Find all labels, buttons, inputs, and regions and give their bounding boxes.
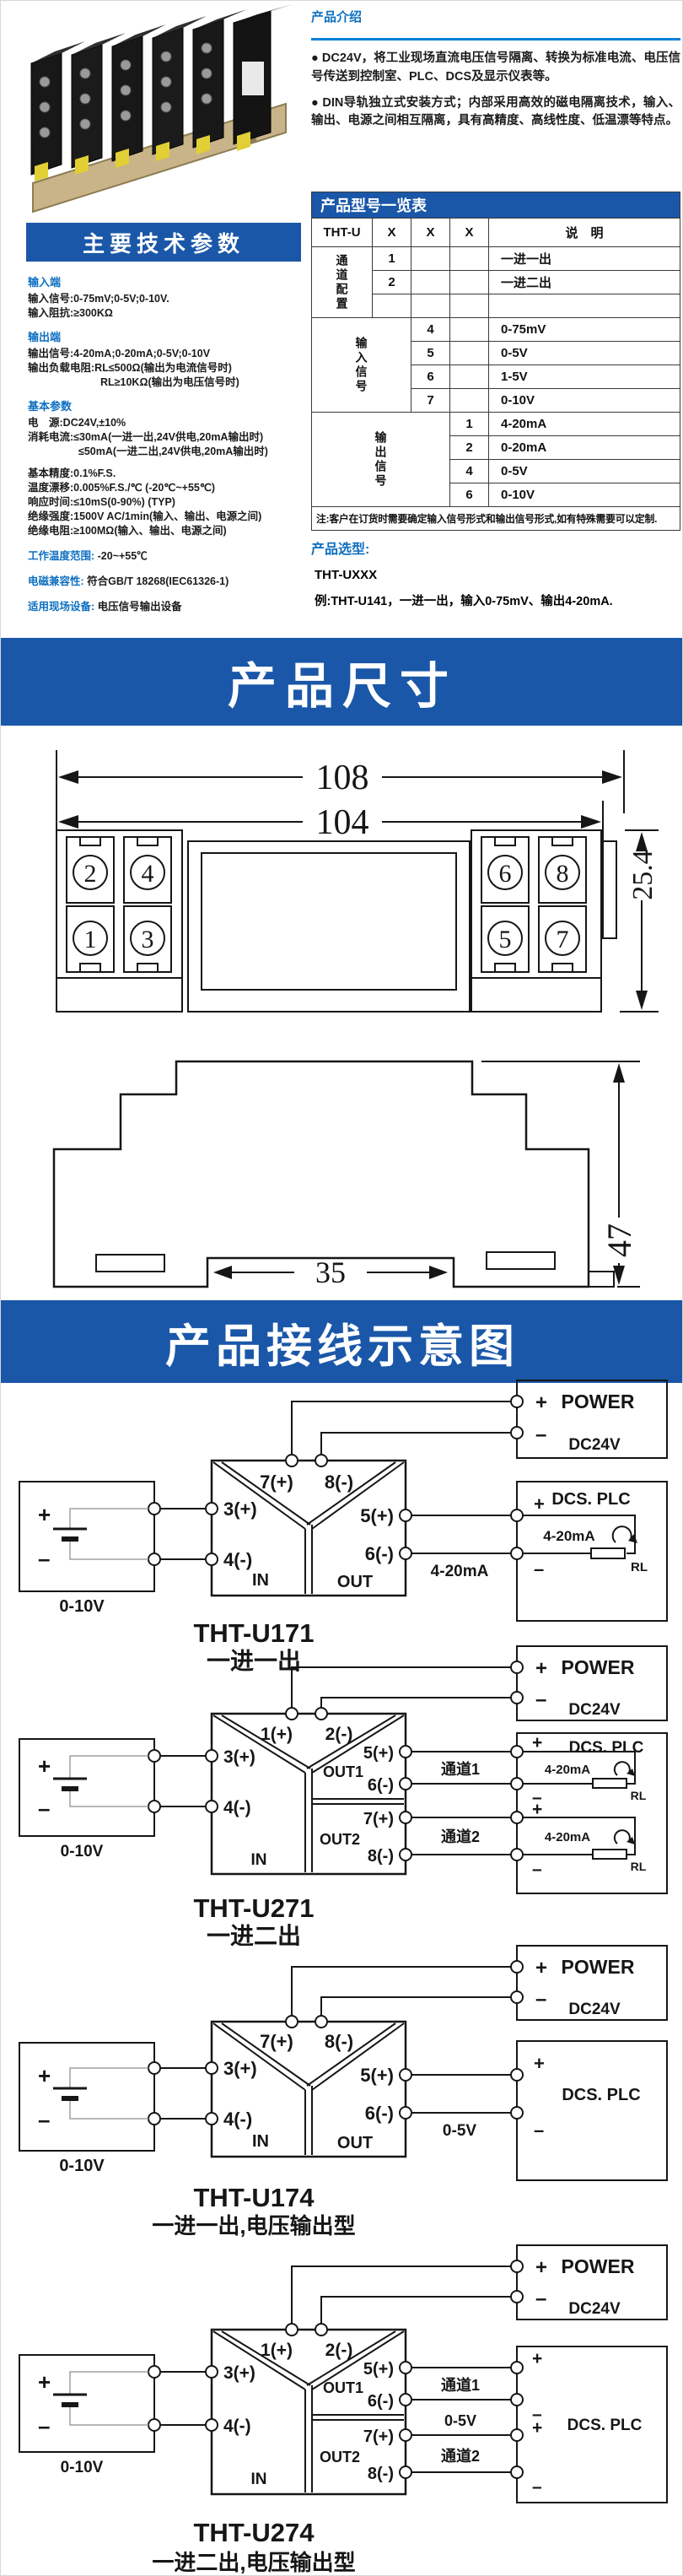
signal-source: + – 0-10V (19, 1482, 160, 1616)
clip-slot (487, 1252, 555, 1269)
terminal-label: 6(-) (368, 1776, 394, 1795)
module-label (242, 62, 264, 95)
power-label: POWER (562, 1656, 635, 1678)
intro-bullet: ● DIN导轨独立式安装方式；内部采用高效的磁电隔离技术，输入、输出、电源之间相… (311, 95, 680, 132)
out-label: OUT (337, 1573, 373, 1591)
terminal-number: 6 (499, 860, 512, 888)
battery-plus: + (38, 1753, 51, 1779)
terminal-number: 3 (142, 926, 154, 953)
dim-108-label: 108 (316, 759, 369, 797)
model-table-title: 产品型号一览表 (312, 192, 680, 219)
minus-sign: – (535, 1423, 546, 1446)
selection-example: 例:THT-U141，一进一出，输入0-75mV、输出4-20mA. (315, 591, 613, 609)
spec-heading: 输入端 (28, 275, 306, 289)
product-datasheet-page: 产品介绍 ● DC24V，将工业现场直流电压信号隔离、转换为标准电流、电压信号传… (0, 0, 683, 2576)
terminal-label: 3(+) (223, 1747, 255, 1767)
wiring-diagram-tht-u274: + – POWER DC24V 1(+) 2(-) 3(+) 4(-) 5(+)… (1, 2233, 683, 2576)
spec-heading: 输出端 (28, 330, 306, 344)
terminal-label: 6(-) (368, 2392, 394, 2411)
plus-sign: + (532, 1733, 542, 1752)
terminal-label: 5(+) (363, 2360, 394, 2379)
terminal-number: 2 (84, 860, 97, 888)
source-label: 0-10V (59, 2157, 105, 2175)
terminal-label: 8(-) (325, 1472, 353, 1493)
minus-sign: – (534, 2120, 544, 2141)
desc-cell: 一进二出 (489, 271, 680, 294)
desc-cell (489, 294, 680, 318)
source-label: 0-10V (61, 2459, 104, 2476)
diagram-model: THT-U271 (194, 1893, 315, 1923)
model-table-note: 注:客户在订货时需要确定输入信号形式和输出信号形式,如有特殊需要可以定制. (312, 507, 680, 531)
loop-label: 4-20mA (545, 1830, 590, 1844)
terminal-label: 4(-) (223, 1549, 252, 1570)
battery-plus: + (38, 2369, 51, 2395)
power-label: POWER (562, 1956, 635, 1978)
dcs-label: DCS. PLC (567, 2417, 643, 2434)
spec-line: 绝缘强度:1500V AC/1min(输入、输出、电源之间) (28, 510, 306, 524)
minus-sign: – (534, 1558, 544, 1580)
terminal-label: 8(-) (325, 2031, 353, 2052)
desc-cell: 0-10V (489, 483, 680, 507)
wiring-diagram-tht-u174: + – POWER DC24V 7(+) 8(-) 3(+) 4(-) 5(+)… (1, 1933, 683, 2237)
terminal-label: 5(+) (363, 1744, 394, 1763)
minus-sign: – (532, 2477, 542, 2497)
intro-title: 产品介绍 (311, 8, 362, 25)
diagram-model: THT-U174 (194, 2183, 315, 2212)
code-cell (373, 294, 411, 318)
load-resistor (593, 1850, 627, 1859)
desc-cell: 一进一出 (489, 247, 680, 271)
loop-label: 4-20mA (543, 1528, 594, 1544)
desc-cell: 0-75mV (489, 318, 680, 342)
dcs-box: + – DCS. PLC (511, 2041, 667, 2180)
power-voltage: DC24V (568, 2001, 621, 2018)
spec-line: 输入阻抗:≥300KΩ (28, 306, 306, 321)
channel2-label: 通道2 (441, 2447, 480, 2465)
terminal-label: 2(-) (325, 2341, 353, 2360)
terminal-label: 2(-) (325, 1725, 353, 1744)
code-cell: 6 (411, 365, 450, 389)
plus-sign: + (532, 1800, 542, 1819)
diagram-subtitle: 一进二出,电压输出型 (152, 2550, 355, 2575)
terminal-number: 5 (499, 926, 512, 953)
out1-label: OUT1 (323, 2379, 363, 2396)
terminal-label: 6(-) (365, 1543, 394, 1564)
code-cell: 2 (373, 271, 411, 294)
dim-108: 108 (58, 759, 622, 797)
terminal-label: 7(+) (363, 1810, 394, 1828)
desc-cell: 0-10V (489, 389, 680, 413)
code-cell: 2 (450, 436, 489, 460)
code-cell: 4 (411, 318, 450, 342)
code-cell: 1 (450, 413, 489, 436)
desc-cell: 0-5V (489, 342, 680, 365)
left-terminal-block: 2 4 1 3 (56, 830, 182, 1012)
model-x2: X (411, 219, 450, 247)
wire-label: 4-20mA (431, 1563, 489, 1580)
plus-sign: + (534, 1493, 545, 1515)
wiring-diagram-tht-u171: + – POWER DC24V 7(+) 8(-) 3(+) 4(-) 5(+)… (1, 1364, 683, 1671)
minus-sign: – (535, 1988, 546, 2011)
source-label: 0-10V (59, 1597, 105, 1616)
spec-kv: 适用现场设备: 电压信号输出设备 (28, 600, 306, 614)
out2-label: OUT2 (320, 1831, 360, 1848)
intro-bullets: ● DC24V，将工业现场直流电压信号隔离、转换为标准电流、电压信号传送到控制室… (311, 50, 680, 138)
rl-label: RL (631, 1789, 647, 1802)
din-clip-tab (603, 841, 616, 938)
code-cell: 7 (411, 389, 450, 413)
specs-list: 输入端 输入信号:0-75mV;0-5V;0-10V. 输入阻抗:≥300KΩ … (28, 266, 306, 614)
range-label: 0-5V (444, 2412, 476, 2429)
dim-35-label: 35 (315, 1256, 346, 1289)
product-photo (8, 4, 298, 217)
terminal-number: 7 (557, 926, 569, 953)
power-box: + – POWER DC24V (511, 1646, 667, 1720)
plus-sign: + (535, 1657, 547, 1680)
plus-sign: + (535, 2256, 547, 2279)
model-x1: X (373, 219, 411, 247)
in-label: IN (251, 2471, 267, 2488)
spec-line: 消耗电流:≤30mA(一进一出,24V供电,20mA输出时) (28, 430, 306, 445)
power-label: POWER (562, 1391, 635, 1412)
terminal-label: 5(+) (360, 2065, 394, 2086)
terminal-label: 8(-) (368, 2465, 394, 2483)
dimension-top-view: 108 104 2 4 1 3 (1, 733, 683, 1039)
desc-cell: 0-20mA (489, 436, 680, 460)
code-cell: 6 (450, 483, 489, 507)
spec-line: 电 源:DC24V,±10% (28, 416, 306, 430)
spec-line: 输入信号:0-75mV;0-5V;0-10V. (28, 292, 306, 306)
terminal-number: 4 (142, 860, 154, 888)
rail-notch (589, 1272, 614, 1287)
dim-25-4: 25.4 (620, 830, 659, 1012)
code-cell: 1 (373, 247, 411, 271)
out1-label: OUT1 (323, 1763, 363, 1780)
channel2-label: 通道2 (441, 1828, 480, 1845)
terminal-label: 4(-) (223, 2417, 251, 2436)
battery-minus: – (38, 1796, 50, 1821)
in-label: IN (252, 1571, 269, 1590)
spec-line: 输出信号:4-20mA;0-20mA;0-5V;0-10V (28, 347, 306, 361)
dim-25-4-label: 25.4 (627, 850, 659, 900)
battery-minus: – (38, 1546, 50, 1571)
spec-line: 输出负载电阻:RL≤500Ω(输出为电流信号时) (28, 361, 306, 375)
battery-minus: – (38, 2107, 50, 2132)
minus-sign: – (535, 2287, 546, 2310)
selection-model: THT-UXXX (315, 568, 377, 582)
desc-cell: 0-5V (489, 460, 680, 483)
dim-47-label: 47 (600, 1223, 638, 1257)
terminal-label: 7(+) (363, 2427, 394, 2446)
terminal-label: 1(+) (261, 2341, 293, 2360)
dimension-profile: 35 47 (1, 1039, 683, 1302)
isolator-device: 1(+) 2(-) 3(+) 4(-) 5(+) 6(-) 7(+) 8(-) … (206, 2324, 411, 2494)
dcs-box: DCS. PLC + – + – 4-20mA RL 4-20mA RL (511, 1733, 667, 1893)
load-resistor (593, 1779, 627, 1788)
isolator-device: 7(+) 8(-) 3(+) 4(-) 5(+) 6(-) IN OUT (206, 2016, 411, 2157)
wire-label: 0-5V (443, 2122, 476, 2140)
signal-source: + – 0-10V (19, 1739, 160, 1860)
group-input: 输入信号 (312, 318, 411, 413)
dcs-box: DCS. PLC + – 4-20mA RL (511, 1482, 667, 1621)
model-prefix: THT-U (312, 219, 373, 247)
diagram-model: THT-U274 (194, 2518, 315, 2547)
terminal-label: 7(+) (260, 2031, 293, 2052)
source-label: 0-10V (61, 1843, 104, 1860)
terminal-label: 4(-) (223, 1798, 251, 1817)
channel1-label: 通道1 (441, 1760, 480, 1778)
out-label: OUT (337, 2134, 373, 2152)
right-terminal-block: 6 8 5 7 (471, 830, 601, 1012)
minus-sign: – (532, 1860, 542, 1879)
channel1-label: 通道1 (441, 2376, 480, 2394)
isolator-modules (31, 4, 293, 181)
spec-line: RL≥10KΩ(输出为电压信号时) (28, 375, 306, 390)
dim-35: 35 (213, 1256, 448, 1289)
signal-source: + – 0-10V (19, 2355, 160, 2476)
rl-label: RL (631, 1560, 648, 1574)
plus-sign: + (535, 1957, 547, 1979)
specs-banner: 主要技术参数 (26, 223, 301, 262)
plus-sign: + (535, 1391, 547, 1414)
terminal-label: 3(+) (223, 2363, 255, 2383)
terminal-label: 3(+) (223, 1499, 257, 1520)
spec-line: ≤50mA(一进二出,24V供电,20mA输出时) (28, 445, 306, 459)
rl-label: RL (631, 1860, 647, 1873)
power-box: + – POWER DC24V (511, 1380, 667, 1458)
spec-kv: 工作温度范围: -20~+55℃ (28, 549, 306, 564)
spec-kv: 电磁兼容性: 符合GB/T 18268(IEC61326-1) (28, 575, 306, 589)
spec-line: 响应时间:≤10mS(0-90%) (TYP) (28, 495, 306, 510)
minus-sign: – (535, 1688, 546, 1711)
battery-minus: – (38, 2413, 50, 2438)
terminal-label: 7(+) (260, 1472, 293, 1493)
terminal-label: 1(+) (261, 1725, 293, 1744)
power-voltage: DC24V (568, 1436, 621, 1454)
signal-source: + – 0-10V (19, 2043, 160, 2175)
battery-plus: + (38, 1502, 51, 1527)
isolator-device: 7(+) 8(-) 3(+) 4(-) 5(+) 6(-) IN OUT (206, 1455, 411, 1596)
dcs-box: + – + – DCS. PLC (511, 2346, 667, 2503)
terminal-number: 8 (557, 860, 569, 888)
wiring-diagram-tht-u271: + – POWER DC24V 1(+) 2(-) 3(+) 4(-) 5(+)… (1, 1634, 683, 1946)
battery-plus: + (38, 2063, 51, 2088)
loop-arrow (613, 1526, 632, 1542)
intro-rule (311, 38, 680, 41)
in-label: IN (252, 2132, 269, 2151)
terminal-label: 3(+) (223, 2058, 257, 2079)
terminal-label: 6(-) (365, 2103, 394, 2124)
model-desc-head: 说 明 (489, 219, 680, 247)
isolator-device: 1(+) 2(-) 3(+) 4(-) 5(+) 6(-) 7(+) 8(-) … (206, 1708, 411, 1874)
model-table: 产品型号一览表 THT-U X X X 说 明 通道配置 1 一进一出 2 一进… (311, 192, 680, 531)
in-label: IN (251, 1851, 267, 1869)
spec-line: 温度漂移:0.005%F.S./℃ (-20℃~+55℃) (28, 481, 306, 495)
code-cell: 4 (450, 460, 489, 483)
group-channel: 通道配置 (312, 247, 373, 318)
loop-label: 4-20mA (545, 1763, 590, 1777)
spec-line: 基本精度:0.1%F.S. (28, 467, 306, 481)
intro-bullet: ● DC24V，将工业现场直流电压信号隔离、转换为标准电流、电压信号传送到控制室… (311, 50, 680, 87)
out2-label: OUT2 (320, 2449, 360, 2465)
dcs-label: DCS. PLC (551, 1490, 630, 1509)
terminal-number: 1 (84, 926, 97, 953)
terminal-label: 4(-) (223, 2109, 252, 2130)
group-output: 输出信号 (312, 413, 450, 507)
power-voltage: DC24V (568, 1701, 621, 1719)
desc-cell: 4-20mA (489, 413, 680, 436)
load-resistor (591, 1548, 625, 1558)
dcs-label: DCS. PLC (569, 1739, 644, 1757)
model-x3: X (450, 219, 489, 247)
dim-104-label: 104 (316, 803, 369, 842)
plus-sign: + (532, 2349, 542, 2368)
dimensions-banner: 产品尺寸 (1, 638, 683, 726)
power-box: + – POWER DC24V (511, 2245, 667, 2319)
power-label: POWER (562, 2255, 635, 2277)
power-voltage: DC24V (568, 2300, 621, 2318)
selection-title: 产品选型: (311, 537, 369, 558)
clip-slot (96, 1255, 164, 1272)
spec-line: 绝缘电阻:≥100MΩ(输入、输出、电源之间) (28, 524, 306, 538)
terminal-label: 8(-) (368, 1847, 394, 1866)
terminal-label: 5(+) (360, 1505, 394, 1526)
power-box: + – POWER DC24V (511, 1946, 667, 2020)
plus-sign: + (532, 2418, 542, 2438)
desc-cell: 1-5V (489, 365, 680, 389)
display-window (188, 841, 470, 1012)
plus-sign: + (534, 2053, 545, 2074)
dcs-label: DCS. PLC (562, 2086, 640, 2104)
spec-heading: 基本参数 (28, 399, 306, 413)
code-cell: 5 (411, 342, 450, 365)
